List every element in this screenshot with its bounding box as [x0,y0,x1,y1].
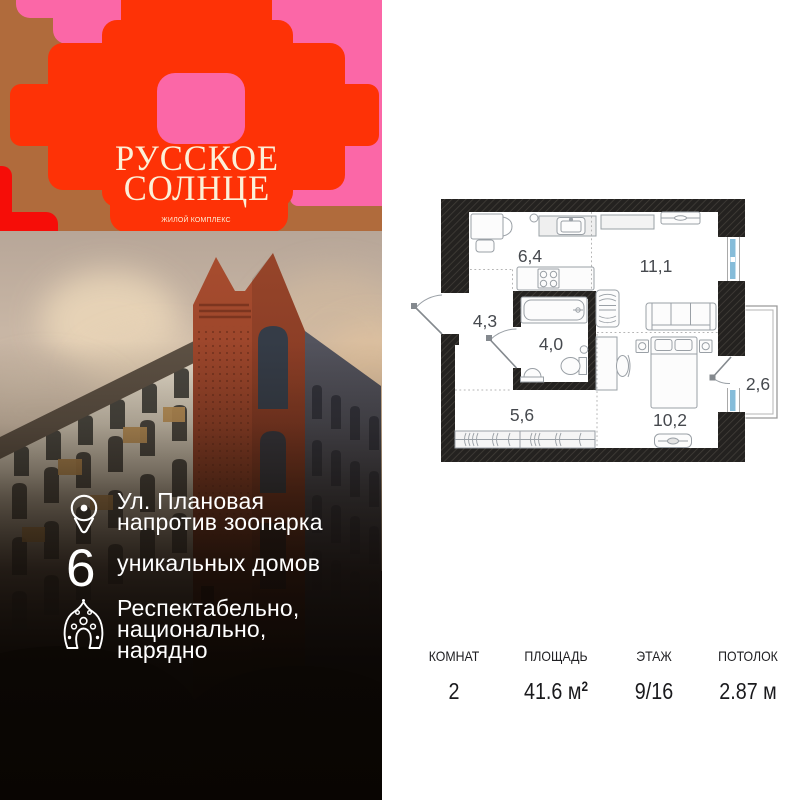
svg-text:4,3: 4,3 [473,311,497,331]
svg-text:4,0: 4,0 [539,334,564,354]
svg-text:10,2: 10,2 [653,410,687,430]
svg-text:2,6: 2,6 [746,374,770,394]
svg-text:6,4: 6,4 [518,246,543,266]
svg-text:11,1: 11,1 [640,256,673,276]
svg-text:5,6: 5,6 [510,405,534,425]
